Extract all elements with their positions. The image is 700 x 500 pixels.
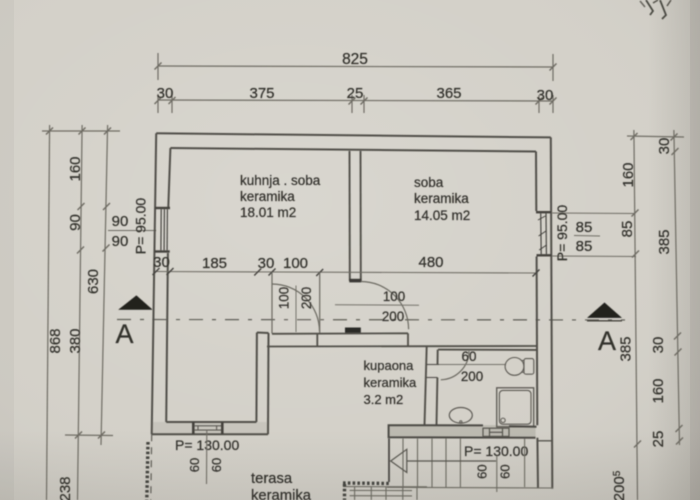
svg-text:keramika: keramika [414,191,469,206]
svg-text:385: 385 [656,229,673,254]
svg-text:3.2 m2: 3.2 m2 [364,392,404,407]
svg-text:kuhnja . soba: kuhnja . soba [240,173,321,188]
svg-text:18.01 m2: 18.01 m2 [240,205,296,220]
svg-text:825: 825 [342,51,368,68]
svg-text:380: 380 [67,328,84,353]
svg-text:90: 90 [112,233,129,250]
svg-text:30: 30 [537,87,554,104]
svg-text:keramika: keramika [240,189,295,204]
svg-text:30: 30 [656,138,673,155]
svg-text:160: 160 [67,156,84,181]
svg-text:375: 375 [249,85,274,102]
svg-text:kupaona: kupaona [364,358,415,373]
svg-text:868: 868 [47,328,64,353]
svg-text:25: 25 [347,85,364,102]
svg-text:P= 95.00: P= 95.00 [554,205,570,262]
svg-text:60: 60 [209,458,224,472]
svg-text:90: 90 [112,213,129,230]
svg-text:160: 160 [620,162,637,187]
svg-text:200: 200 [461,369,483,384]
svg-text:A: A [598,326,616,356]
svg-text:A: A [115,319,133,349]
svg-text:soba: soba [414,175,444,190]
svg-text:60: 60 [187,458,202,472]
svg-text:85: 85 [619,221,636,238]
svg-text:25: 25 [650,431,667,448]
svg-text:P= 95.00: P= 95.00 [133,198,149,255]
svg-text:60: 60 [498,464,513,478]
svg-text:365: 365 [436,85,461,102]
svg-text:30: 30 [650,337,667,354]
svg-text:85: 85 [576,238,593,255]
svg-text:keramika: keramika [251,488,312,500]
svg-text:100: 100 [283,255,308,272]
svg-text:60: 60 [462,349,477,364]
svg-text:terasa: terasa [251,471,293,487]
svg-text:30: 30 [153,254,170,271]
svg-text:14.05 m2: 14.05 m2 [414,208,470,223]
svg-text:100: 100 [277,287,292,309]
svg-text:480: 480 [418,254,443,271]
svg-text:200: 200 [382,309,404,324]
svg-text:160: 160 [650,378,667,403]
svg-text:185: 185 [202,255,227,272]
svg-text:630: 630 [85,269,102,294]
svg-text:keramika: keramika [364,375,418,390]
svg-text:385: 385 [618,336,635,361]
svg-text:90: 90 [67,214,84,231]
svg-text:30: 30 [258,255,275,272]
svg-text:238: 238 [57,476,74,500]
svg-text:200: 200 [299,287,314,309]
svg-text:60: 60 [475,464,490,478]
svg-text:30: 30 [157,85,174,102]
svg-text:100: 100 [383,289,405,304]
svg-text:85: 85 [576,219,593,236]
svg-text:P= 130.00: P= 130.00 [464,443,528,459]
